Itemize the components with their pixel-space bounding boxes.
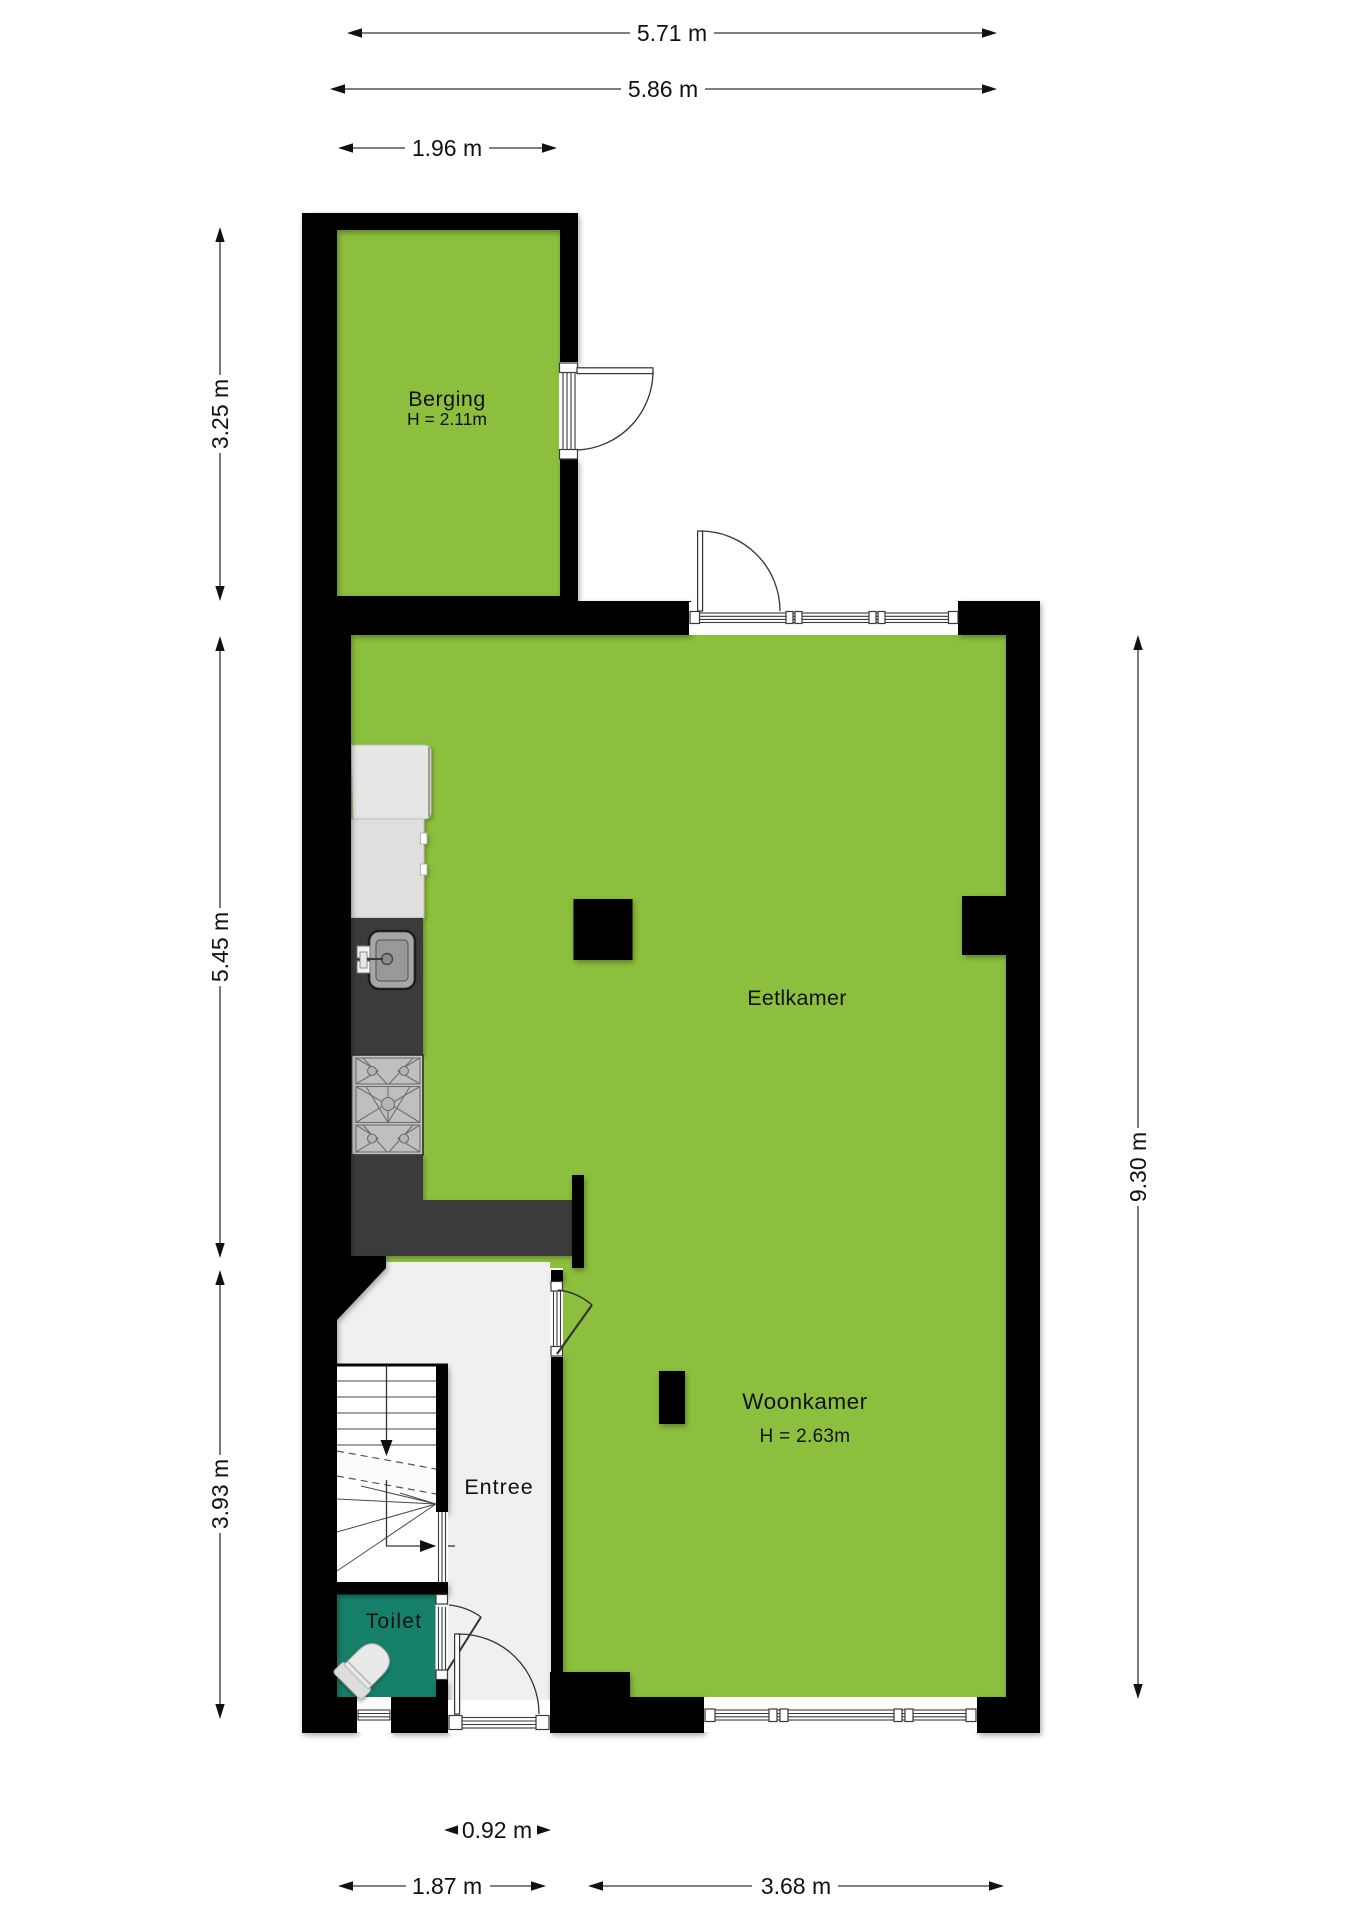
svg-text:5.71 m: 5.71 m	[637, 20, 707, 46]
svg-text:3.68 m: 3.68 m	[761, 1873, 831, 1899]
svg-text:H = 2.11m: H = 2.11m	[407, 409, 487, 429]
svg-text:9.30 m: 9.30 m	[1125, 1132, 1151, 1202]
svg-text:Eetlkamer: Eetlkamer	[747, 986, 846, 1010]
svg-text:5.86 m: 5.86 m	[628, 76, 698, 102]
svg-text:1.87 m: 1.87 m	[412, 1873, 482, 1899]
svg-text:H = 2.63m: H = 2.63m	[760, 1426, 851, 1447]
svg-text:Entree: Entree	[464, 1475, 533, 1499]
svg-text:Berging: Berging	[408, 387, 486, 411]
svg-text:Toilet: Toilet	[366, 1610, 423, 1633]
svg-text:3.93 m: 3.93 m	[207, 1459, 233, 1529]
svg-text:1.96 m: 1.96 m	[412, 135, 482, 161]
svg-text:3.25 m: 3.25 m	[207, 379, 233, 449]
svg-text:5.45 m: 5.45 m	[207, 912, 233, 982]
svg-text:Woonkamer: Woonkamer	[742, 1389, 867, 1414]
svg-text:0.92 m: 0.92 m	[462, 1817, 532, 1843]
